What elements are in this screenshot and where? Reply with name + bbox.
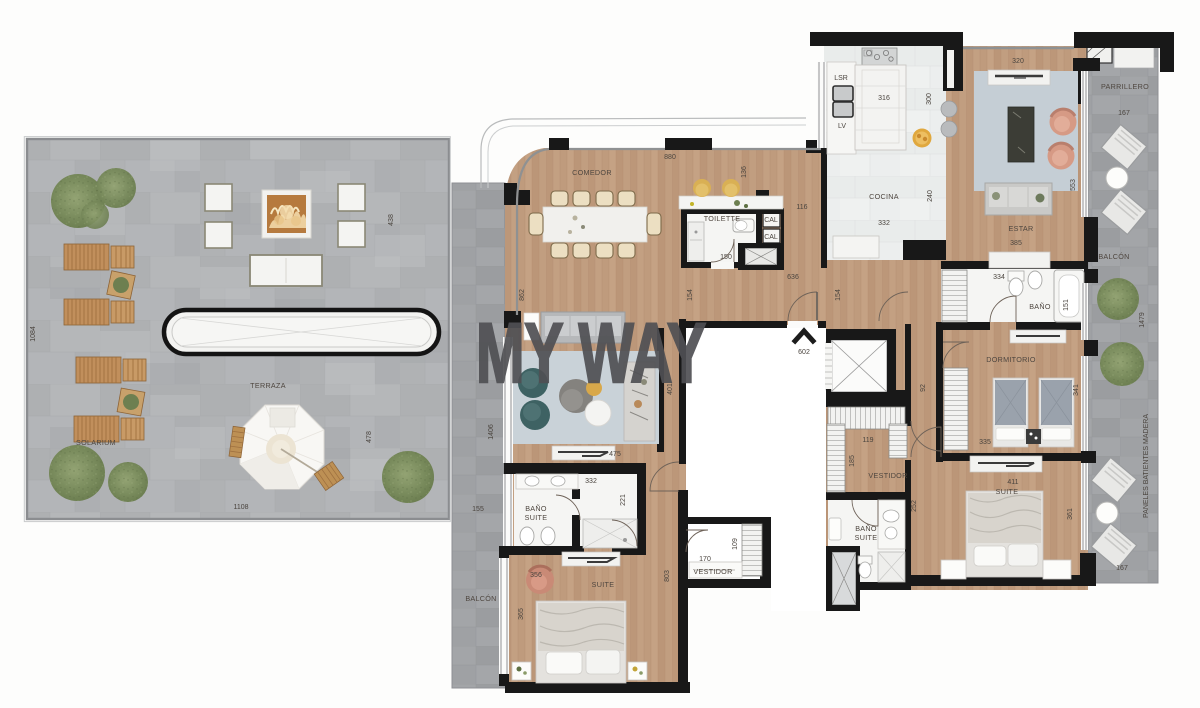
svg-text:636: 636 [787,274,799,281]
svg-text:553: 553 [1070,179,1077,191]
svg-text:1108: 1108 [233,504,248,511]
svg-text:LSR: LSR [834,75,848,82]
svg-text:SOLARIUM: SOLARIUM [76,438,116,447]
svg-text:356: 356 [530,572,542,579]
svg-text:185: 185 [849,455,856,467]
svg-text:TOILETTE: TOILETTE [704,214,741,223]
svg-text:BALCÓN: BALCÓN [465,594,496,603]
svg-text:385: 385 [1010,240,1022,247]
svg-text:167: 167 [1116,565,1128,572]
svg-text:BALCÓN: BALCÓN [1098,252,1129,261]
svg-text:170: 170 [699,556,711,563]
svg-text:411: 411 [1007,479,1018,486]
svg-text:1406: 1406 [488,424,495,440]
svg-text:252: 252 [911,500,918,512]
svg-text:BAÑO: BAÑO [525,504,547,513]
svg-text:334: 334 [993,274,1005,281]
svg-text:VESTIDOR: VESTIDOR [868,471,907,480]
svg-text:167: 167 [1118,110,1130,117]
svg-text:116: 116 [796,204,807,211]
svg-text:PARRILLERO: PARRILLERO [1101,82,1149,91]
svg-text:TERRAZA: TERRAZA [250,381,286,390]
svg-text:BAÑO: BAÑO [855,524,877,533]
svg-text:ESTAR: ESTAR [1009,224,1034,233]
svg-text:155: 155 [472,506,484,513]
svg-text:SUITE: SUITE [592,580,615,589]
svg-text:862: 862 [519,289,526,301]
svg-text:LV: LV [838,123,846,130]
svg-text:BAÑO: BAÑO [1029,302,1051,311]
svg-text:CAL: CAL [764,234,778,241]
svg-text:332: 332 [878,220,890,227]
svg-text:151: 151 [1063,299,1070,311]
svg-text:1479: 1479 [1139,312,1146,328]
svg-text:361: 361 [1067,508,1074,520]
svg-text:365: 365 [518,608,525,620]
svg-text:CAL: CAL [764,217,778,224]
svg-text:DORMITORIO: DORMITORIO [986,355,1036,364]
svg-text:150: 150 [720,254,732,261]
svg-text:341: 341 [1073,384,1080,396]
svg-text:320: 320 [1012,58,1024,65]
svg-text:PANELES BATIENTES MADERA: PANELES BATIENTES MADERA [1143,414,1150,518]
svg-text:300: 300 [926,93,933,105]
svg-text:478: 478 [366,431,373,443]
svg-text:475: 475 [609,451,621,458]
svg-text:240: 240 [927,190,934,202]
svg-text:803: 803 [664,570,671,582]
svg-text:COCINA: COCINA [869,192,899,201]
svg-text:VESTIDOR: VESTIDOR [693,567,732,576]
svg-text:332: 332 [585,478,597,485]
svg-text:1084: 1084 [30,326,37,342]
svg-text:119: 119 [862,437,873,444]
svg-text:335: 335 [979,439,991,446]
svg-text:MY WAY: MY WAY [476,306,706,400]
svg-text:SUITE: SUITE [855,533,878,542]
svg-text:COMEDOR: COMEDOR [572,168,612,177]
svg-text:SUITE: SUITE [525,513,548,522]
svg-text:316: 316 [878,95,890,102]
svg-text:136: 136 [741,166,748,178]
svg-text:602: 602 [798,349,810,356]
svg-text:154: 154 [835,289,842,301]
svg-text:154: 154 [687,289,694,301]
svg-text:109: 109 [732,538,739,550]
svg-text:221: 221 [620,494,627,506]
svg-text:92: 92 [920,384,927,392]
svg-text:SUITE: SUITE [996,487,1019,496]
svg-text:438: 438 [388,214,395,226]
svg-text:880: 880 [664,154,676,161]
